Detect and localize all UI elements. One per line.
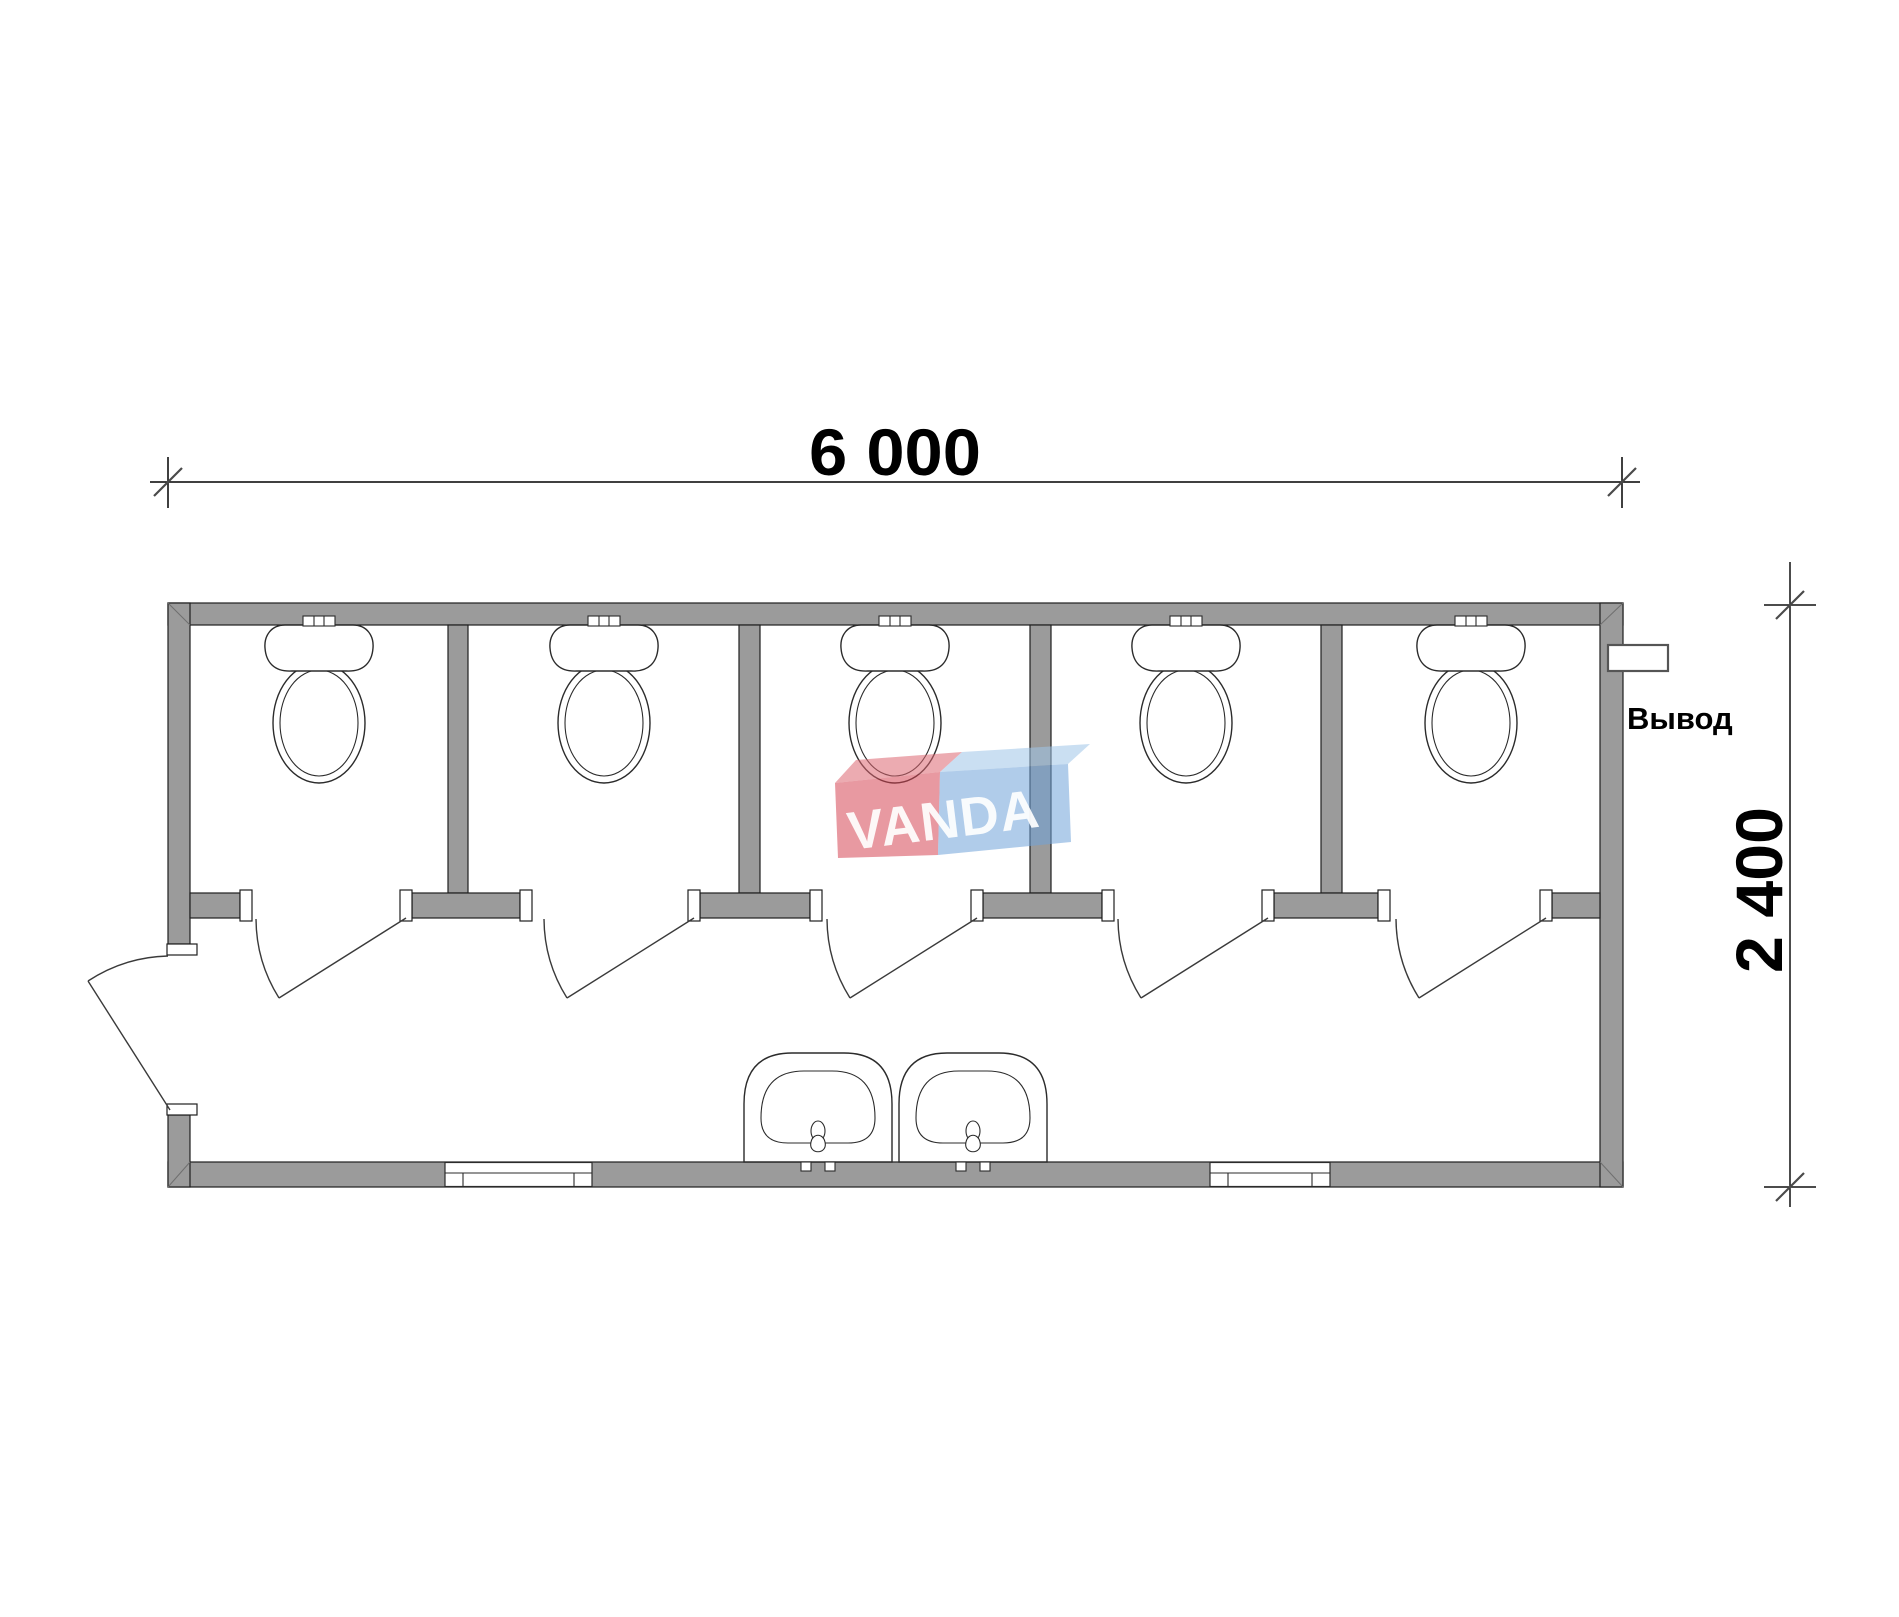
floor-plan-drawing: VANDA 6 000 2 400 Вывод bbox=[0, 0, 1899, 1617]
stall-door-5 bbox=[1396, 918, 1546, 998]
depth-dimension-label: 2 400 bbox=[1722, 807, 1796, 973]
floor-plan-page: VANDA 6 000 2 400 Вывод bbox=[0, 0, 1899, 1617]
door-jamb bbox=[810, 890, 822, 921]
right-wall bbox=[1600, 603, 1623, 1187]
window-right bbox=[1210, 1163, 1330, 1187]
door-jamb bbox=[1262, 890, 1274, 921]
window-left bbox=[445, 1163, 592, 1187]
partition-4 bbox=[1321, 625, 1342, 893]
toilet-1 bbox=[265, 616, 373, 783]
depth-dimension: 2 400 bbox=[1722, 562, 1816, 1207]
door-jamb bbox=[688, 890, 700, 921]
width-dimension: 6 000 bbox=[150, 415, 1640, 508]
door-jamb bbox=[1378, 890, 1390, 921]
sink-2 bbox=[899, 1053, 1047, 1171]
toilet-4 bbox=[1132, 616, 1240, 783]
left-wall-upper bbox=[168, 603, 190, 944]
partition-1 bbox=[448, 625, 468, 893]
front-stub bbox=[700, 893, 810, 918]
door-jamb bbox=[1540, 890, 1552, 921]
watermark-logo: VANDA bbox=[835, 744, 1090, 862]
entrance-door bbox=[88, 956, 170, 1110]
door-jamb bbox=[520, 890, 532, 921]
entrance-jamb-upper bbox=[167, 944, 197, 955]
entrance-jamb-lower bbox=[167, 1104, 197, 1115]
stall-door-4 bbox=[1118, 918, 1268, 998]
front-stub bbox=[983, 893, 1102, 918]
door-jamb bbox=[971, 890, 983, 921]
sink-1 bbox=[744, 1053, 892, 1171]
door-jamb bbox=[1102, 890, 1114, 921]
toilet-5 bbox=[1417, 616, 1525, 783]
door-jamb bbox=[240, 890, 252, 921]
outlet-box bbox=[1608, 645, 1668, 671]
stall-door-1 bbox=[256, 918, 406, 998]
width-dimension-label: 6 000 bbox=[809, 415, 981, 489]
bottom-wall bbox=[168, 1162, 1623, 1187]
front-stub bbox=[190, 893, 240, 918]
stall-door-2 bbox=[544, 918, 694, 998]
stall-doors bbox=[256, 918, 1546, 998]
toilet-2 bbox=[550, 616, 658, 783]
left-wall-lower bbox=[168, 1115, 190, 1187]
outlet-label: Вывод bbox=[1627, 701, 1733, 736]
sinks bbox=[744, 1053, 1047, 1171]
front-stub bbox=[1274, 893, 1378, 918]
partition-2 bbox=[739, 625, 760, 893]
front-stub bbox=[1552, 893, 1600, 918]
door-jamb bbox=[400, 890, 412, 921]
front-stub bbox=[412, 893, 520, 918]
stall-door-3 bbox=[827, 918, 977, 998]
